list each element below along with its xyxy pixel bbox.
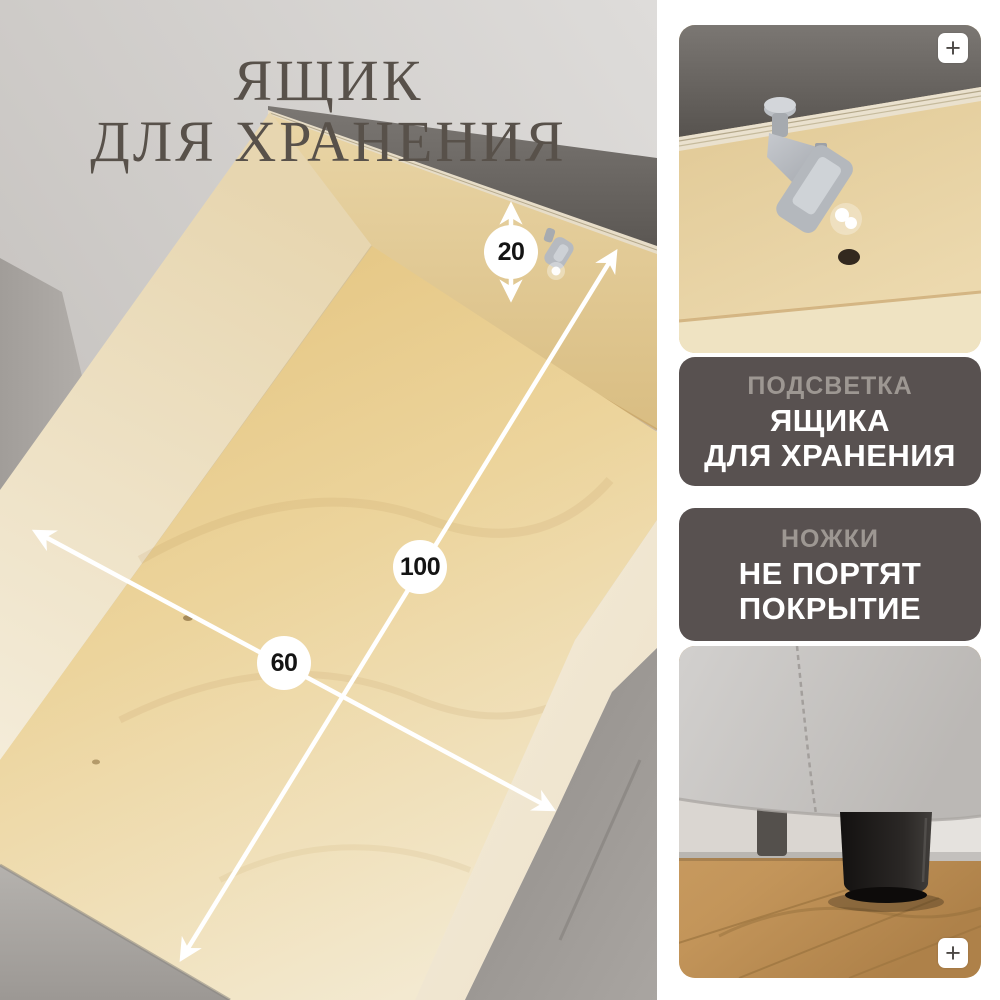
dimension-badge-width: 60 — [257, 636, 311, 690]
caption-legs-strong-1: НЕ ПОРТЯТ — [739, 557, 922, 590]
caption-legs-muted: НОЖКИ — [781, 524, 879, 555]
feature-caption-light: ПОДСВЕТКА ЯЩИКА ДЛЯ ХРАНЕНИЯ — [679, 357, 981, 486]
feature-photo-light: + — [679, 25, 981, 353]
hinge-photo-illustration — [679, 25, 981, 353]
caption-legs-strong-2: ПОКРЫТИЕ — [739, 592, 921, 625]
dimension-badge-depth: 20 — [484, 225, 538, 279]
dimension-badge-length: 100 — [393, 540, 447, 594]
caption-light-strong-2: ДЛЯ ХРАНЕНИЯ — [704, 439, 956, 472]
caption-light-strong-1: ЯЩИКА — [770, 404, 890, 437]
product-infographic-page: 20 100 60 ЯЩИК ДЛЯ ХРАНЕНИЯ — [0, 0, 1000, 1000]
feature-caption-legs: НОЖКИ НЕ ПОРТЯТ ПОКРЫТИЕ — [679, 508, 981, 641]
sofa-leg-photo-illustration — [679, 646, 981, 978]
zoom-in-button[interactable]: + — [938, 33, 968, 63]
page-title: ЯЩИК ДЛЯ ХРАНЕНИЯ — [0, 50, 657, 172]
title-line-1: ЯЩИК — [0, 50, 657, 111]
feature-photo-legs: + — [679, 646, 981, 978]
dimension-length-value: 100 — [400, 553, 440, 582]
sofa-corner — [679, 646, 981, 820]
dimension-depth-value: 20 — [498, 238, 525, 267]
drill-hole — [838, 249, 860, 265]
plus-icon: + — [945, 34, 961, 62]
plus-icon: + — [945, 939, 961, 967]
dimension-width-value: 60 — [271, 649, 298, 678]
sofa-leg-front — [840, 812, 932, 903]
zoom-in-button[interactable]: + — [938, 938, 968, 968]
title-line-2: ДЛЯ ХРАНЕНИЯ — [0, 111, 657, 172]
caption-light-muted: ПОДСВЕТКА — [747, 371, 912, 402]
main-product-photo: 20 100 60 ЯЩИК ДЛЯ ХРАНЕНИЯ — [0, 0, 657, 1000]
